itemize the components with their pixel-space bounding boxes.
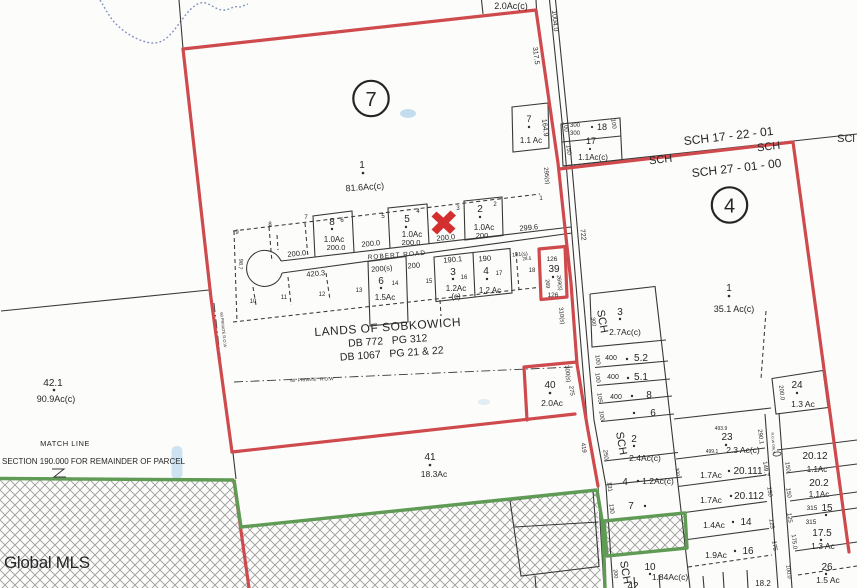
svg-text:20.12: 20.12 xyxy=(802,451,827,462)
svg-text:1.7Ac: 1.7Ac xyxy=(700,470,722,480)
svg-text:6: 6 xyxy=(650,408,656,419)
svg-text:200.0: 200.0 xyxy=(361,238,380,249)
svg-text:13: 13 xyxy=(356,288,363,294)
svg-text:2: 2 xyxy=(477,204,483,215)
svg-text:15: 15 xyxy=(426,279,433,285)
svg-text:42.1: 42.1 xyxy=(43,378,63,389)
svg-text:1.5Ac: 1.5Ac xyxy=(375,293,395,302)
svg-text:39: 39 xyxy=(548,264,560,275)
svg-text:5: 5 xyxy=(404,214,410,225)
svg-text:14: 14 xyxy=(392,281,399,287)
svg-text:6: 6 xyxy=(378,276,384,287)
svg-text:4: 4 xyxy=(724,196,735,218)
svg-text:1.2Ac(c): 1.2Ac(c) xyxy=(642,476,674,486)
svg-text:1.4Ac: 1.4Ac xyxy=(703,520,725,530)
svg-text:1.3 Ac: 1.3 Ac xyxy=(811,541,835,551)
svg-text:190.1: 190.1 xyxy=(443,254,462,265)
svg-text:722: 722 xyxy=(578,229,586,242)
svg-text:20.2: 20.2 xyxy=(809,478,829,489)
svg-text:2.3 Ac(c): 2.3 Ac(c) xyxy=(726,445,760,455)
svg-text:499.1: 499.1 xyxy=(706,449,719,455)
svg-text:SECTION 190.000 FOR REMAINDER: SECTION 190.000 FOR REMAINDER OF PARCEL xyxy=(2,457,186,466)
svg-text:7: 7 xyxy=(628,501,634,512)
svg-text:5.1: 5.1 xyxy=(634,372,648,383)
svg-text:18.2: 18.2 xyxy=(755,579,771,588)
svg-text:1: 1 xyxy=(359,160,365,171)
svg-text:126: 126 xyxy=(548,292,559,299)
svg-text:400: 400 xyxy=(605,355,617,362)
svg-text:2.4Ac(c): 2.4Ac(c) xyxy=(629,453,661,463)
svg-text:1.9Ac: 1.9Ac xyxy=(705,550,727,560)
svg-text:200: 200 xyxy=(611,569,618,579)
svg-text:200.0: 200.0 xyxy=(402,238,421,247)
svg-text:3: 3 xyxy=(617,307,623,318)
svg-text:420.3: 420.3 xyxy=(306,268,325,279)
svg-text:7: 7 xyxy=(526,114,531,124)
svg-text:4: 4 xyxy=(483,266,489,277)
svg-text:23: 23 xyxy=(721,432,733,443)
svg-text:1.1Ac: 1.1Ac xyxy=(809,490,829,499)
svg-text:300: 300 xyxy=(570,123,581,129)
svg-text:190: 190 xyxy=(478,253,491,263)
svg-text:11: 11 xyxy=(281,295,288,301)
svg-text:20.112: 20.112 xyxy=(734,491,764,502)
svg-text:17.5: 17.5 xyxy=(812,528,832,539)
svg-text:1.84Ac(c): 1.84Ac(c) xyxy=(652,572,689,582)
svg-text:14: 14 xyxy=(740,517,752,528)
svg-text:Global MLS: Global MLS xyxy=(4,553,90,572)
svg-text:2.0Ac: 2.0Ac xyxy=(541,398,563,408)
svg-text:300: 300 xyxy=(570,131,581,137)
svg-text:24: 24 xyxy=(791,380,803,391)
svg-text:315: 315 xyxy=(807,505,818,512)
svg-text:8: 8 xyxy=(646,390,652,401)
svg-text:26: 26 xyxy=(821,562,833,573)
svg-text:2.0Ac(c): 2.0Ac(c) xyxy=(494,1,528,11)
svg-text:2.7Ac(c): 2.7Ac(c) xyxy=(609,327,641,337)
svg-text:1: 1 xyxy=(726,283,732,294)
svg-text:7: 7 xyxy=(365,89,376,111)
svg-text:269: 269 xyxy=(543,279,550,289)
svg-text:41: 41 xyxy=(424,452,436,463)
svg-text:1.1 Ac: 1.1 Ac xyxy=(520,136,542,145)
svg-text:18.3Ac: 18.3Ac xyxy=(421,469,448,479)
svg-text:12: 12 xyxy=(319,292,326,298)
svg-text:5.2: 5.2 xyxy=(634,353,648,364)
svg-text:(c): (c) xyxy=(451,292,461,301)
svg-text:10: 10 xyxy=(250,299,257,305)
svg-text:35.1 Ac(c): 35.1 Ac(c) xyxy=(714,304,755,314)
svg-text:3: 3 xyxy=(450,267,456,278)
svg-text:1.3 Ac: 1.3 Ac xyxy=(791,399,815,409)
svg-text:98.7: 98.7 xyxy=(237,258,244,269)
svg-text:16: 16 xyxy=(742,546,754,557)
svg-text:299.6: 299.6 xyxy=(519,222,538,233)
svg-text:200(s): 200(s) xyxy=(371,263,393,274)
svg-text:2: 2 xyxy=(631,434,637,445)
svg-text:400: 400 xyxy=(607,374,619,381)
svg-text:SCl: SCl xyxy=(837,133,855,145)
svg-text:300: 300 xyxy=(674,467,681,476)
svg-text:400: 400 xyxy=(610,394,622,401)
svg-text:1.1Ac: 1.1Ac xyxy=(807,465,827,474)
svg-text:200.0: 200.0 xyxy=(436,232,455,243)
svg-text:315: 315 xyxy=(806,519,817,526)
svg-text:18: 18 xyxy=(597,122,607,132)
svg-text:200: 200 xyxy=(407,260,420,270)
svg-text:126: 126 xyxy=(547,256,558,263)
svg-text:200: 200 xyxy=(476,231,489,240)
svg-text:15: 15 xyxy=(821,503,833,514)
svg-text:28.5: 28.5 xyxy=(522,256,532,262)
svg-text:17: 17 xyxy=(586,136,596,146)
svg-text:MATCH LINE: MATCH LINE xyxy=(40,439,90,448)
svg-text:1.2 Ac: 1.2 Ac xyxy=(479,286,501,295)
svg-text:40: 40 xyxy=(544,380,556,391)
svg-text:18: 18 xyxy=(529,268,536,274)
svg-text:16: 16 xyxy=(461,275,468,281)
svg-text:90.9Ac(c): 90.9Ac(c) xyxy=(37,394,76,404)
svg-text:20.111: 20.111 xyxy=(733,466,763,477)
svg-text:1.5 Ac: 1.5 Ac xyxy=(816,575,840,585)
svg-text:4: 4 xyxy=(622,477,628,488)
svg-text:200.0: 200.0 xyxy=(287,248,306,259)
svg-text:1.1Ac(c): 1.1Ac(c) xyxy=(578,153,608,162)
svg-text:17: 17 xyxy=(496,271,503,277)
svg-text:200.0: 200.0 xyxy=(327,243,346,252)
svg-text:8: 8 xyxy=(329,217,335,228)
svg-text:1.7Ac: 1.7Ac xyxy=(700,495,722,505)
